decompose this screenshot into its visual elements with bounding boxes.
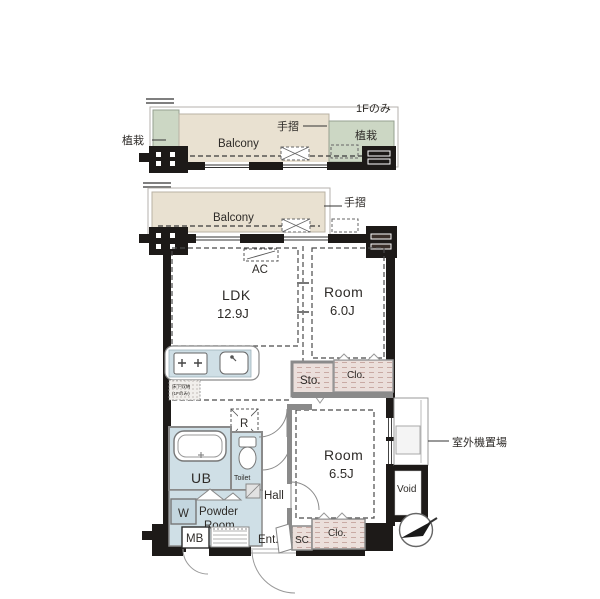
folding-door-icon [368, 354, 380, 360]
handrail-label-lower: 手摺 [344, 195, 366, 209]
handrail-label-upper: 手摺 [277, 119, 299, 133]
expansion-joint-icon [146, 99, 174, 103]
shoe-closet: SC [292, 526, 312, 550]
closet-upper: Clo. [334, 354, 393, 392]
clo-lower-label: Clo. [328, 528, 346, 539]
door-swing-icon [252, 550, 295, 593]
meter-box: MB [182, 527, 209, 574]
mb-label: MB [186, 533, 204, 545]
plant-label-left: 植栽 [122, 133, 144, 147]
clo-upper-label: Clo. [347, 370, 365, 381]
ac-spot-icon [244, 249, 278, 261]
room65-size: 6.5J [329, 466, 354, 481]
outdoor-unit-label: 室外機置場 [452, 435, 507, 449]
upper-balcony-label: Balcony [218, 138, 259, 150]
folding-door-icon [338, 354, 350, 360]
toilet-icon [239, 437, 256, 469]
void-label: Void [397, 484, 416, 495]
stove-icon [174, 353, 207, 374]
plant-label-right: 植栽 [355, 128, 377, 142]
lower-balcony-label: Balcony [213, 212, 254, 224]
toilet-room: Toilet [231, 432, 262, 490]
ldk-name: LDK [222, 287, 251, 303]
hall-label: Hall [264, 490, 284, 502]
underfloor-label: 床下収納 [172, 383, 191, 390]
floor-note-label: 1Fのみ [356, 102, 391, 115]
bathtub-icon [174, 431, 226, 461]
folding-door-icon [336, 513, 348, 519]
closet-lower: Clo. [312, 513, 365, 549]
expansion-joint-icon [143, 183, 171, 187]
outdoor-unit-area: 室外機置場 [394, 398, 507, 465]
underfloor-storage: 床下収納 (1Fのみ) [169, 380, 200, 400]
ub-label: UB [191, 470, 211, 486]
sto-label: Sto. [300, 375, 320, 387]
toilet-label: Toilet [234, 475, 250, 482]
north-arrow-icon [400, 514, 438, 547]
bathroom-ub: UB [169, 427, 231, 490]
upper-balcony: 植栽 Balcony 手摺 植栽 1Fのみ [122, 99, 398, 173]
room60-size: 6.0J [330, 303, 355, 318]
void-area: Void [394, 465, 428, 522]
door-swing-icon [183, 549, 208, 574]
floorplan-svg: 植栽 Balcony 手摺 植栽 1Fのみ Balcony 手摺 [0, 0, 600, 599]
ac-label: AC [252, 264, 268, 276]
room65-name: Room [324, 447, 363, 463]
interior-wall [292, 392, 393, 398]
sc-label: SC [295, 535, 309, 546]
washbasin-icon [246, 484, 260, 498]
washer-label: W [178, 508, 189, 520]
powder-label-1: Powder [199, 506, 238, 518]
floorplan-canvas: 植栽 Balcony 手摺 植栽 1Fのみ Balcony 手摺 [0, 0, 600, 599]
ent-label: Ent. [258, 534, 278, 546]
sliding-partition [297, 246, 309, 362]
kitchen-counter [165, 346, 259, 380]
sink-icon [220, 352, 248, 374]
outdoor-unit-icon [396, 426, 420, 454]
fridge-label: R [240, 418, 248, 430]
folding-door-icon [318, 513, 330, 519]
ldk-size: 12.9J [217, 306, 249, 321]
louver-panel-icon [211, 527, 249, 547]
room-6-0: Room 6.0J [312, 248, 384, 358]
room60-name: Room [324, 284, 363, 300]
